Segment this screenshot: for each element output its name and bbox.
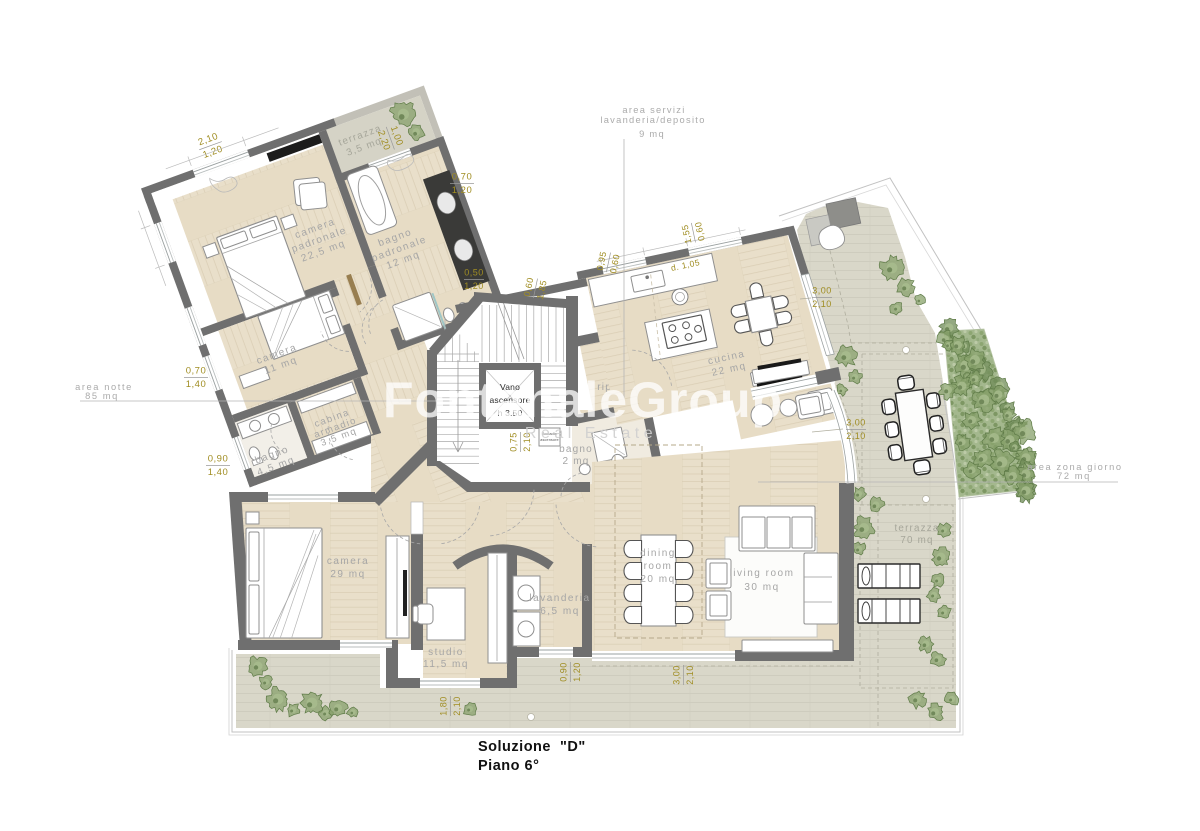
svg-text:1,20: 1,20 bbox=[572, 662, 582, 682]
svg-text:0,70: 0,70 bbox=[186, 366, 207, 377]
svg-text:20 mq: 20 mq bbox=[640, 574, 675, 585]
svg-text:Piano 6°: Piano 6° bbox=[478, 758, 539, 774]
svg-text:studio: studio bbox=[428, 647, 464, 658]
svg-text:dining: dining bbox=[640, 548, 676, 559]
svg-text:Real Estate: Real Estate bbox=[525, 425, 657, 442]
svg-text:11,5 mq: 11,5 mq bbox=[423, 659, 469, 670]
svg-text:9 mq: 9 mq bbox=[639, 129, 665, 139]
svg-text:85 mq: 85 mq bbox=[85, 391, 119, 401]
svg-text:0,90: 0,90 bbox=[208, 454, 229, 465]
svg-text:2,10: 2,10 bbox=[452, 696, 462, 716]
svg-text:3,00: 3,00 bbox=[846, 418, 866, 428]
svg-text:70 mq: 70 mq bbox=[900, 535, 933, 546]
svg-text:2,10: 2,10 bbox=[846, 431, 866, 441]
svg-text:living room: living room bbox=[730, 568, 795, 579]
svg-text:0,90: 0,90 bbox=[559, 662, 569, 682]
svg-text:1,40: 1,40 bbox=[186, 379, 207, 390]
svg-text:Soluzione "D": Soluzione "D" bbox=[478, 739, 586, 755]
svg-text:lavanderia: lavanderia bbox=[529, 593, 590, 604]
svg-text:1,20: 1,20 bbox=[464, 281, 484, 291]
svg-text:1,20: 1,20 bbox=[452, 185, 473, 196]
svg-text:FontanaleGroup: FontanaleGroup bbox=[383, 372, 783, 428]
svg-text:3,00: 3,00 bbox=[812, 286, 832, 296]
svg-text:room: room bbox=[644, 561, 673, 572]
svg-text:0,75: 0,75 bbox=[509, 432, 519, 452]
svg-text:1,80: 1,80 bbox=[439, 696, 449, 716]
svg-text:1,55: 1,55 bbox=[680, 224, 694, 245]
svg-text:area servizi: area servizi bbox=[622, 105, 685, 115]
svg-text:29 mq: 29 mq bbox=[330, 569, 365, 580]
svg-text:0,50: 0,50 bbox=[464, 268, 484, 278]
svg-text:2,10: 2,10 bbox=[685, 665, 695, 685]
svg-text:2 mq: 2 mq bbox=[562, 456, 589, 467]
svg-text:2,10: 2,10 bbox=[812, 299, 832, 309]
svg-text:camera: camera bbox=[327, 556, 369, 567]
svg-text:30 mq: 30 mq bbox=[744, 582, 779, 593]
svg-text:bagno: bagno bbox=[559, 444, 593, 455]
svg-text:6,5 mq: 6,5 mq bbox=[540, 606, 580, 617]
svg-text:0,70: 0,70 bbox=[452, 172, 473, 183]
svg-text:72 mq: 72 mq bbox=[1057, 471, 1091, 481]
svg-text:1,40: 1,40 bbox=[208, 467, 229, 478]
svg-text:3,00: 3,00 bbox=[672, 665, 682, 685]
svg-text:lavanderia/deposito: lavanderia/deposito bbox=[600, 115, 705, 125]
svg-text:terrazza: terrazza bbox=[895, 523, 940, 534]
